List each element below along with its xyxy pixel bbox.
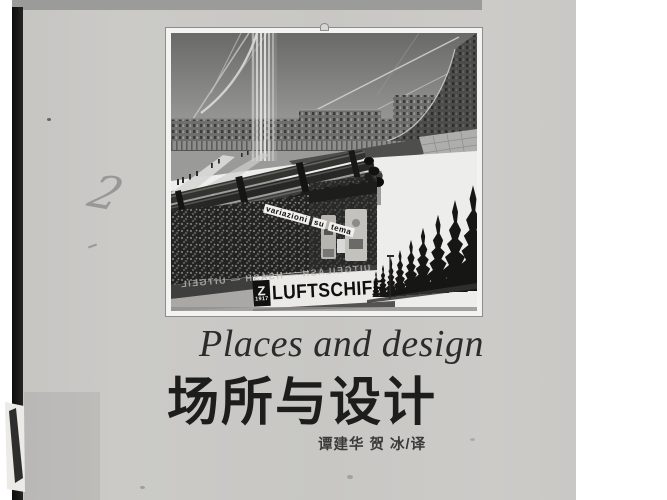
cover-illustration-frame: variazionisutema UITGEILASH — HSASH — UI… (165, 27, 483, 317)
spine-label-sticker (0, 396, 30, 500)
scanned-book-cover: 2 (0, 0, 667, 500)
scan-top-band (12, 0, 482, 10)
translators-line: 谭建华 贺 冰/译 (318, 433, 426, 454)
banner-word: su (311, 217, 327, 230)
scan-speck (470, 438, 475, 441)
frame-hanger-nub (320, 23, 329, 31)
scan-speck (347, 475, 353, 479)
banner-word: tema (328, 222, 355, 237)
sign-year: 1917 (255, 297, 269, 303)
cover-illustration: variazionisutema UITGEILASH — HSASH — UI… (171, 33, 477, 311)
spine-shadow (24, 392, 100, 500)
scan-speck (140, 486, 145, 489)
sign-luftschiff-text: LUFTSCHIFF (271, 275, 384, 304)
title-english: Places and design (165, 325, 484, 365)
scan-speck (47, 118, 51, 121)
sign-z-1917-emblem: Z 1917 (252, 280, 270, 307)
title-chinese: 场所与设计 (167, 360, 437, 435)
